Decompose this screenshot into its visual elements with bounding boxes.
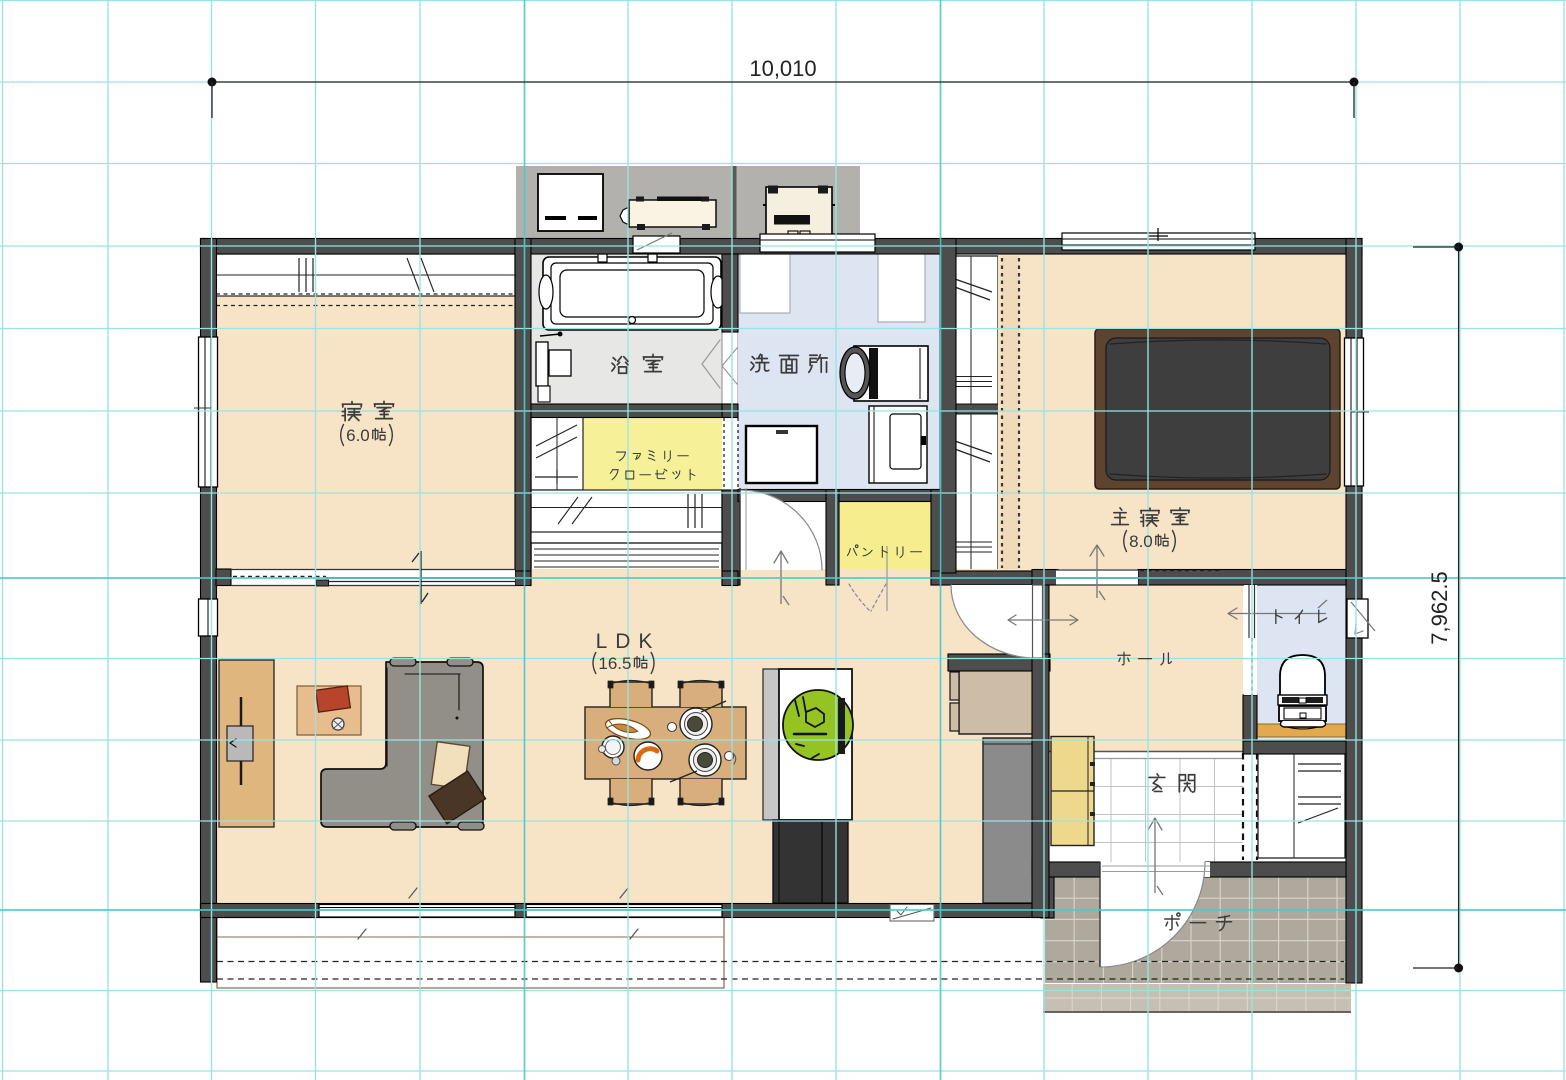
svg-text:LDK: LDK <box>596 630 661 653</box>
svg-text:7,962.5: 7,962.5 <box>1427 571 1452 644</box>
svg-text:8.0: 8.0 <box>1129 532 1153 551</box>
svg-text:10,010: 10,010 <box>749 56 816 81</box>
svg-text:6.0: 6.0 <box>346 426 370 445</box>
svg-text:16.5: 16.5 <box>598 654 631 673</box>
